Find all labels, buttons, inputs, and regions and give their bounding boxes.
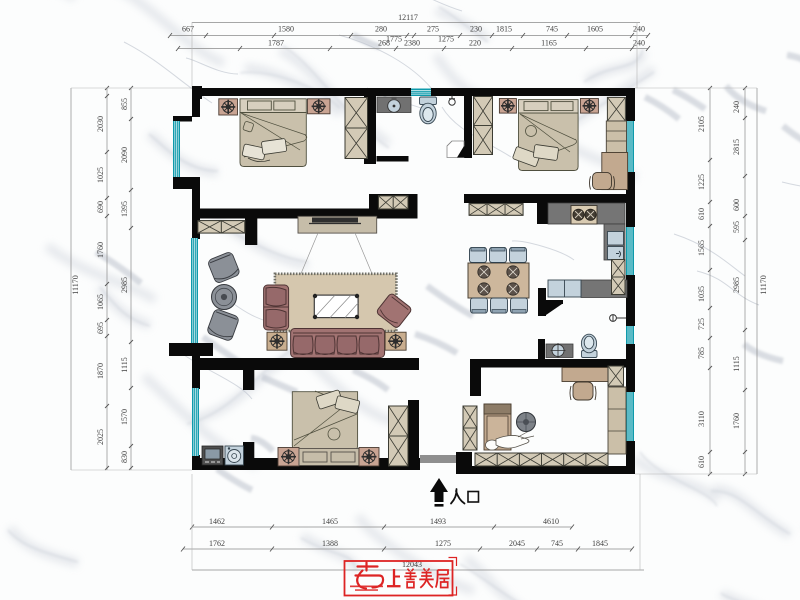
svg-text:1493: 1493 xyxy=(430,517,446,526)
svg-text:220: 220 xyxy=(469,39,481,48)
svg-text:1605: 1605 xyxy=(587,25,603,34)
svg-text:240: 240 xyxy=(633,25,645,34)
svg-text:725: 725 xyxy=(697,318,706,330)
svg-text:1565: 1565 xyxy=(697,240,706,256)
svg-text:11170: 11170 xyxy=(759,275,768,294)
svg-text:4610: 4610 xyxy=(543,517,559,526)
svg-text:1115: 1115 xyxy=(732,356,741,371)
svg-text:2105: 2105 xyxy=(697,116,706,132)
svg-text:12117: 12117 xyxy=(398,13,418,22)
svg-text:2815: 2815 xyxy=(732,139,741,155)
svg-text:610: 610 xyxy=(697,456,706,468)
svg-text:230: 230 xyxy=(470,25,482,34)
svg-text:1462: 1462 xyxy=(209,517,225,526)
svg-text:1225: 1225 xyxy=(697,174,706,190)
svg-text:745: 745 xyxy=(546,25,558,34)
svg-text:1815: 1815 xyxy=(496,25,512,34)
svg-text:1025: 1025 xyxy=(96,167,105,183)
svg-text:830: 830 xyxy=(120,451,129,463)
svg-text:280: 280 xyxy=(375,25,387,34)
svg-text:2985: 2985 xyxy=(732,277,741,293)
svg-text:1760: 1760 xyxy=(732,413,741,429)
svg-text:690: 690 xyxy=(96,201,105,213)
svg-text:695: 695 xyxy=(96,322,105,334)
svg-text:1035: 1035 xyxy=(697,286,706,302)
svg-text:610: 610 xyxy=(697,208,706,220)
svg-text:1870: 1870 xyxy=(96,363,105,379)
svg-text:1465: 1465 xyxy=(322,517,338,526)
svg-text:268: 268 xyxy=(378,39,390,48)
svg-text:275: 275 xyxy=(427,25,439,34)
svg-text:1570: 1570 xyxy=(120,409,129,425)
svg-text:855: 855 xyxy=(120,98,129,110)
svg-text:1115: 1115 xyxy=(120,357,129,372)
svg-text:1395: 1395 xyxy=(120,201,129,217)
svg-text:3110: 3110 xyxy=(697,411,706,427)
svg-text:1275: 1275 xyxy=(438,35,454,44)
svg-text:2090: 2090 xyxy=(120,147,129,163)
svg-text:785: 785 xyxy=(697,347,706,359)
svg-text:595: 595 xyxy=(732,221,741,233)
svg-text:745: 745 xyxy=(551,539,563,548)
svg-text:2030: 2030 xyxy=(96,116,105,132)
svg-text:1845: 1845 xyxy=(592,539,608,548)
svg-text:240: 240 xyxy=(633,39,645,48)
svg-text:11170: 11170 xyxy=(71,275,80,294)
svg-text:1762: 1762 xyxy=(209,539,225,548)
svg-text:2045: 2045 xyxy=(509,539,525,548)
svg-text:1787: 1787 xyxy=(268,39,284,48)
svg-text:1165: 1165 xyxy=(541,39,557,48)
svg-text:2985: 2985 xyxy=(120,277,129,293)
svg-text:1760: 1760 xyxy=(96,242,105,258)
svg-text:1388: 1388 xyxy=(322,539,338,548)
svg-text:600: 600 xyxy=(732,199,741,211)
svg-text:1580: 1580 xyxy=(278,25,294,34)
svg-text:2380: 2380 xyxy=(404,39,420,48)
svg-text:1275: 1275 xyxy=(435,539,451,548)
svg-text:1065: 1065 xyxy=(96,294,105,310)
svg-text:240: 240 xyxy=(732,101,741,113)
svg-text:2025: 2025 xyxy=(96,429,105,445)
